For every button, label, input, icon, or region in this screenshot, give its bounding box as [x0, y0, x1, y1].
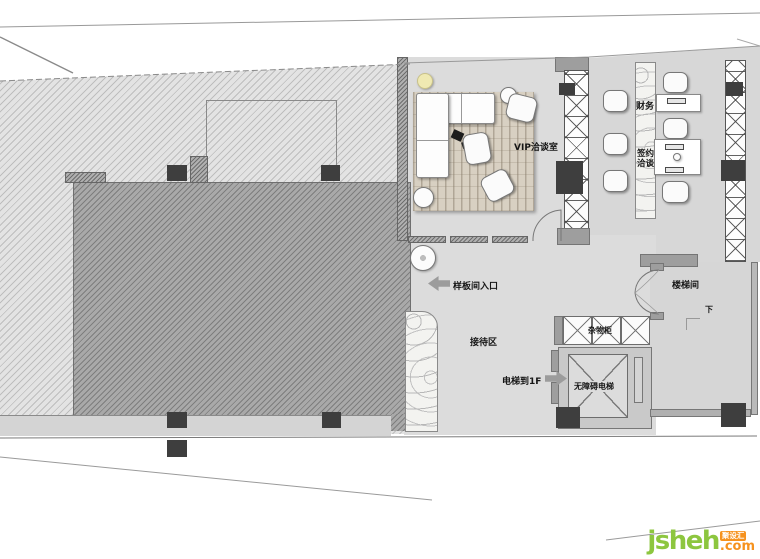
accessible-elevator-label: 无障碍电梯 [573, 381, 615, 392]
task-chair [663, 118, 688, 139]
door-hinge-block [650, 263, 664, 271]
ground-line [0, 436, 757, 438]
stone-feature-wall [405, 311, 438, 432]
stairwell-top-wall [640, 254, 698, 267]
stairwell-right-wall [751, 262, 758, 415]
wall-pier [65, 172, 106, 183]
display-low-wall [492, 236, 528, 243]
down-label: 下 [705, 304, 713, 315]
wall-pier [551, 382, 559, 404]
stair-mark [686, 318, 700, 330]
wall-block [557, 228, 590, 245]
column [721, 160, 745, 181]
signing-label-line1: 签约 [637, 149, 654, 159]
wall-pier [190, 156, 208, 183]
floorplan-page: { "labels": { "vip_room": "VIP洽谈室", "fin… [0, 0, 760, 559]
column [559, 83, 575, 95]
task-chair [662, 181, 689, 203]
elevator-to-1f-label: 电梯到1F [502, 374, 541, 387]
site-boundary-diagonal [0, 37, 73, 73]
storage-cabinet-label: 杂物柜 [588, 325, 612, 336]
column [167, 412, 187, 428]
wall-pier [551, 350, 559, 372]
corner-line [737, 39, 760, 46]
planter [410, 245, 436, 271]
task-chair [663, 72, 688, 93]
column [721, 403, 746, 427]
stairwell-label: 楼梯间 [672, 278, 699, 291]
computer-monitor [665, 144, 684, 150]
guest-chair [603, 170, 628, 192]
glass-partition [564, 70, 589, 244]
display-low-wall [408, 236, 446, 243]
elevator-panel [634, 357, 643, 403]
sample-room-entrance-label: 样板间入口 [453, 279, 498, 292]
ceiling-light [417, 73, 433, 89]
armchair [462, 131, 493, 166]
watermark-suffix: .com [720, 541, 755, 553]
signing-label-line2: 洽谈 [637, 159, 654, 169]
sofa-vertical [416, 93, 449, 178]
computer-monitor [667, 98, 686, 104]
site-boundary-top [0, 13, 760, 27]
watermark-brand: jsheh [647, 530, 719, 552]
existing-building-mass [73, 182, 411, 416]
door-hinge-block [650, 312, 664, 320]
column [167, 165, 187, 181]
signing-label: 签约 洽谈 [637, 149, 654, 169]
column [556, 161, 583, 194]
site-boundary-bottom-left [0, 457, 432, 500]
vip-left-wall [397, 57, 408, 241]
side-table [413, 187, 434, 208]
wall-pier [554, 316, 563, 345]
reception-area-label: 接待区 [470, 335, 497, 348]
column [321, 165, 340, 181]
column [556, 407, 580, 428]
vip-room-label: VIP洽谈室 [514, 140, 558, 153]
watermark-logo: jsheh 聚设汇 .com [647, 530, 755, 553]
guest-chair [603, 90, 628, 112]
column [322, 412, 341, 428]
column [167, 440, 187, 457]
guest-chair [603, 133, 628, 155]
watermark-stack: 聚设汇 .com [720, 531, 755, 553]
stairwell-floor [650, 262, 757, 415]
finance-label: 财务 [636, 99, 654, 112]
computer-monitor [665, 167, 684, 173]
textured-screen-partition [635, 62, 656, 219]
partition-outline [206, 100, 337, 181]
storage-cabinet-cell [621, 316, 650, 345]
column [726, 82, 743, 96]
display-low-wall [450, 236, 488, 243]
desk-lamp [673, 153, 681, 161]
